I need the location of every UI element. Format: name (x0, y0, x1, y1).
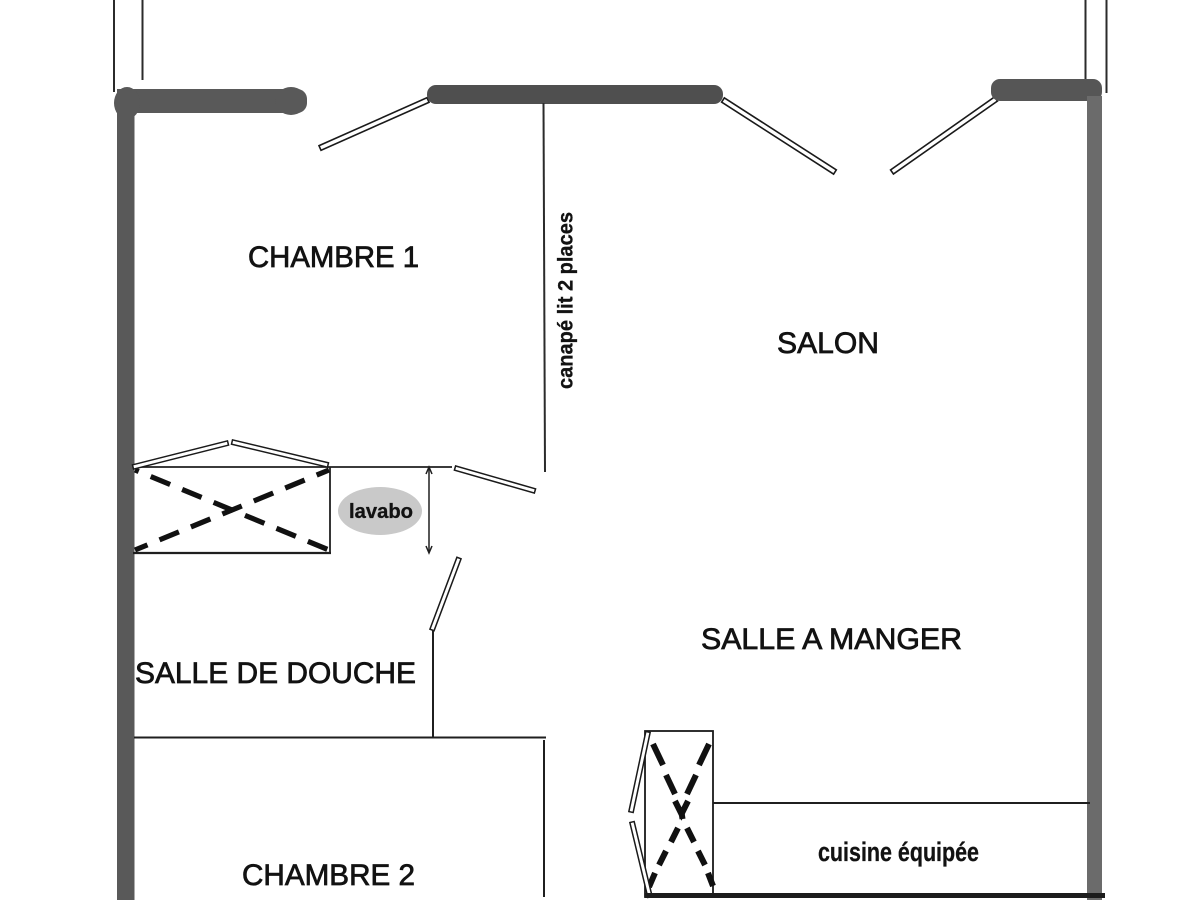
svg-text:cuisine équipée: cuisine équipée (818, 837, 979, 867)
svg-text:SALON: SALON (777, 327, 879, 360)
svg-text:lavabo: lavabo (349, 501, 413, 523)
svg-text:CHAMBRE 2: CHAMBRE 2 (242, 859, 415, 892)
svg-text:canapé lit 2 places: canapé lit 2 places (555, 212, 578, 389)
svg-text:SALLE A MANGER: SALLE A MANGER (701, 623, 962, 656)
svg-text:CHAMBRE 1: CHAMBRE 1 (248, 241, 419, 274)
svg-text:SALLE DE DOUCHE: SALLE DE DOUCHE (135, 657, 416, 690)
